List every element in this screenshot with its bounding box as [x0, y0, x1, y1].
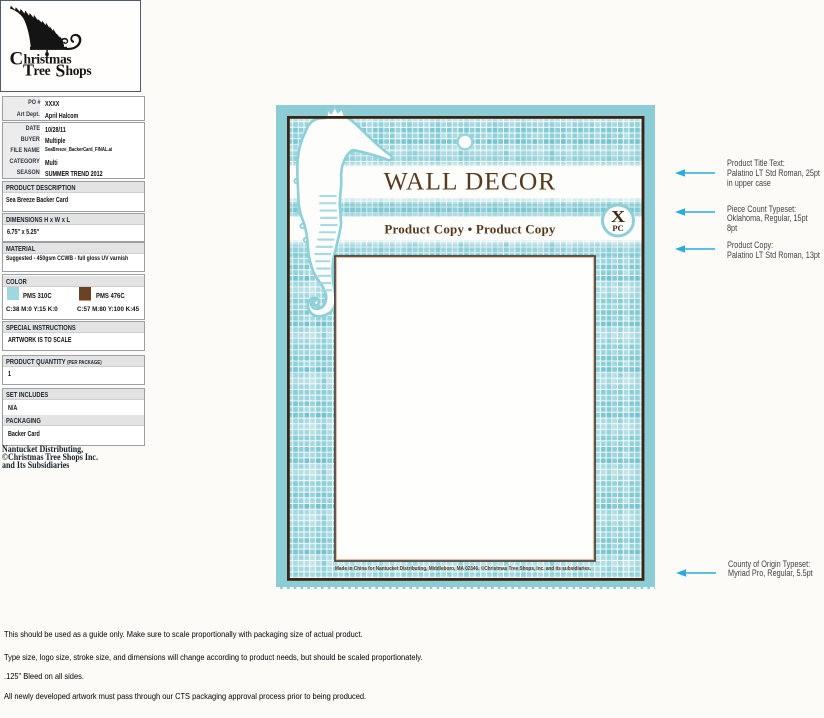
svg-text:C: C: [10, 49, 24, 70]
svg-text:Made in China for Nantucket Di: Made in China for Nantucket Distributing…: [335, 565, 591, 572]
svg-text:hops: hops: [66, 63, 92, 78]
svg-text:Product Copy • Product Copy: Product Copy • Product Copy: [384, 222, 556, 237]
svg-text:WALL DECOR: WALL DECOR: [384, 167, 557, 196]
svg-text:PC: PC: [612, 223, 623, 233]
svg-text:S: S: [56, 61, 66, 81]
svg-text:T: T: [23, 61, 34, 80]
svg-text:ree: ree: [34, 63, 51, 78]
